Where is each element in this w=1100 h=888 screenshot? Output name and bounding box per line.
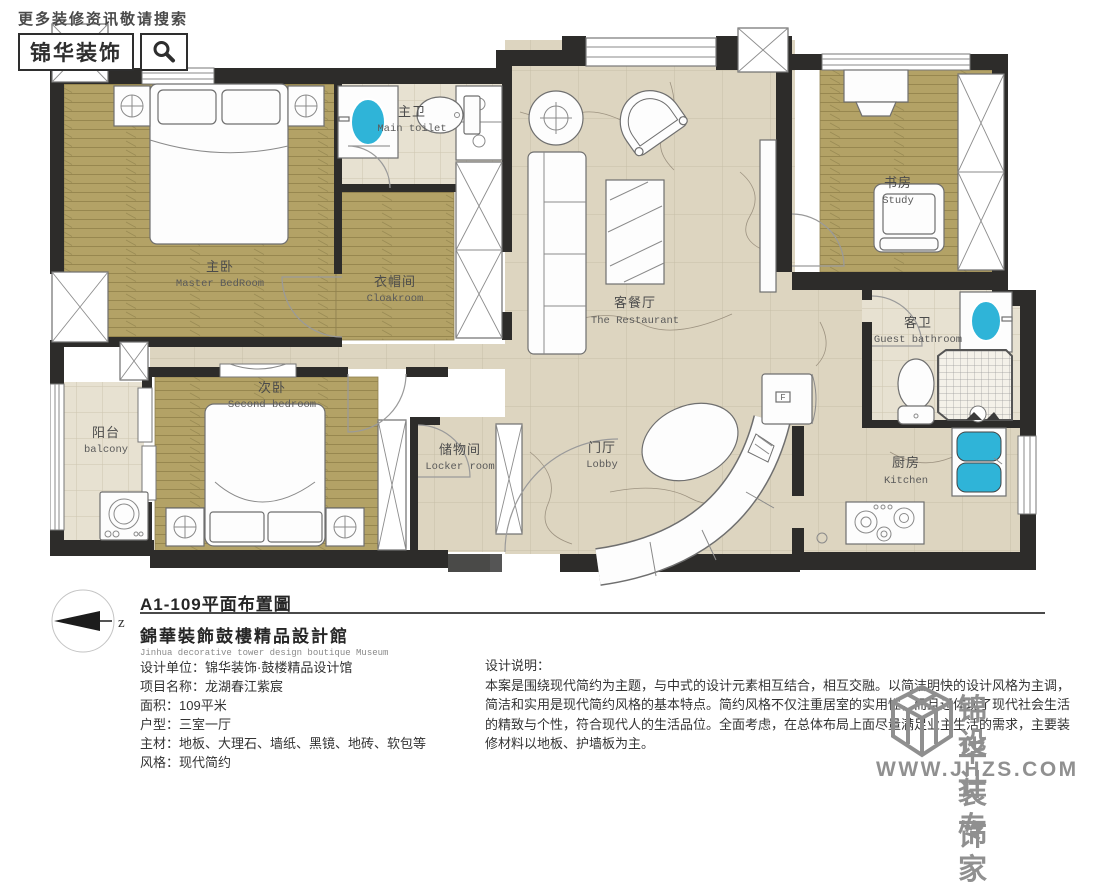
watermark-url: WWW.JHZS.COM [876, 758, 1079, 782]
cube-logo-icon [890, 684, 954, 758]
shower [938, 350, 1012, 422]
page: { "header": { "search_hint": "更多装修资讯敬请搜索… [0, 0, 1100, 800]
room-label-toilet-en: Main toilet [377, 123, 446, 135]
study-window [822, 54, 970, 70]
second-bed [205, 404, 325, 546]
room-label-lobby-en: Lobby [586, 459, 618, 471]
balcony-window [50, 384, 64, 530]
title-rule [140, 612, 1045, 614]
room-label-locker-en: Locker room [425, 461, 494, 473]
cloakroom-wardrobe [456, 162, 502, 338]
nightstand [114, 86, 150, 126]
search-hint-text: 更多装修资讯敬请搜索 [18, 8, 188, 29]
master-bed [150, 84, 288, 244]
project-info-line: 项目名称：龙湖春江紫宸 [140, 677, 426, 696]
brand-search-keyword[interactable]: 锦华装饰 [18, 33, 134, 71]
studio-name-zh: 錦華裝飾鼓樓精品設計館 [140, 622, 388, 647]
entrance-opening [502, 554, 560, 572]
project-info-line: 设计单位：锦华装饰·鼓楼精品设计馆 [140, 658, 426, 677]
room-label-cloakroom-en: Cloakroom [367, 293, 424, 305]
room-label-guestbath-en: Guest bathroom [874, 334, 962, 346]
room-label-study-en: Study [882, 195, 914, 207]
room-label-balcony-en: balcony [84, 444, 128, 456]
duct-shaft [120, 342, 148, 380]
top-search-banner: 更多装修资讯敬请搜索 锦华装饰 [18, 8, 188, 71]
compass-arrow-icon [54, 611, 100, 631]
project-info-line: 风格：现代简约 [140, 753, 426, 772]
second-bedroom-wardrobe [378, 420, 406, 550]
room-label-living-en: The Restaurant [591, 315, 679, 327]
washing-machine [100, 492, 148, 540]
project-info: 设计单位：锦华装饰·鼓楼精品设计馆 项目名称：龙湖春江紫宸 面积：109平米 户… [140, 658, 426, 772]
tv-cabinet [760, 140, 776, 292]
cloakroom-floor [336, 192, 454, 340]
room-label-master-zh: 主卧 [206, 259, 234, 274]
coffee-table [606, 180, 664, 284]
nightstand [288, 86, 324, 126]
fridge-label: F [781, 393, 786, 402]
room-label-guestbath-zh: 客卫 [904, 315, 932, 330]
project-info-line: 主材：地板、大理石、墙纸、黑镜、地砖、软包等 [140, 734, 426, 753]
nightstand [326, 508, 364, 546]
room-label-locker-zh: 储物间 [439, 442, 481, 457]
room-label-toilet-zh: 主卫 [398, 104, 426, 119]
watermark-brand-line2: 设计专家 [958, 720, 988, 888]
nightstand [166, 508, 204, 546]
hallway-floor [150, 344, 508, 369]
project-info-line: 面积：109平米 [140, 696, 426, 715]
search-icon [151, 39, 177, 65]
sofa [528, 152, 586, 354]
title-block: A1-109平面布置圖 錦華裝飾鼓樓精品設計館 Jinhua decorativ… [140, 590, 388, 658]
fridge: F [762, 374, 816, 424]
room-label-cloakroom-zh: 衣帽间 [374, 274, 416, 289]
search-button[interactable] [140, 33, 188, 71]
studio-name-en: Jinhua decorative tower design boutique … [140, 648, 388, 658]
kitchen-sink [952, 428, 1006, 496]
room-label-study-zh: 书房 [884, 175, 912, 190]
stove [846, 502, 924, 544]
toilet-sink [338, 86, 398, 158]
duct-shaft [738, 28, 788, 72]
room-label-lobby-zh: 门厅 [588, 440, 616, 455]
kitchen-door-window [1018, 436, 1036, 514]
room-label-living-zh: 客餐厅 [614, 295, 656, 310]
room-label-kitchen-zh: 厨房 [892, 455, 920, 470]
room-label-bedroom2-en: Second bedroom [228, 399, 316, 411]
side-table [529, 91, 583, 145]
second-bedroom-window-seat [220, 364, 296, 377]
project-info-line: 户型：三室一厅 [140, 715, 426, 734]
compass-direction-label: z [118, 615, 125, 631]
floor-plan: F [50, 22, 1040, 592]
locker-wardrobe [496, 424, 522, 534]
north-compass: z [50, 588, 136, 654]
living-window [586, 38, 716, 66]
bath-toilet [898, 359, 934, 424]
room-label-master-en: Master BedRoom [176, 278, 264, 290]
bath-sink [960, 292, 1012, 352]
duct-shaft [52, 272, 108, 342]
room-label-balcony-zh: 阳台 [92, 425, 120, 440]
design-notes-title: 设计说明： [485, 656, 1070, 676]
room-label-bedroom2-zh: 次卧 [258, 380, 286, 395]
room-label-kitchen-en: Kitchen [884, 475, 928, 487]
study-wardrobe [958, 74, 1004, 270]
